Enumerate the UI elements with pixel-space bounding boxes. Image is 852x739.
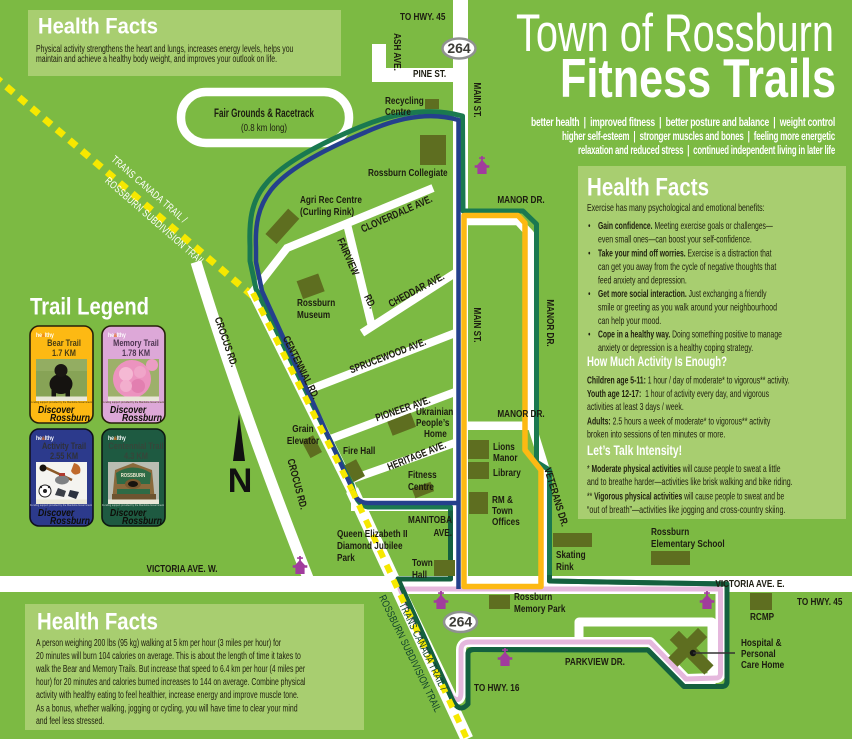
svg-text:Rossburn: Rossburn bbox=[122, 515, 162, 527]
svg-text:Elevator: Elevator bbox=[287, 435, 319, 447]
svg-text:PARKVIEW DR.: PARKVIEW DR. bbox=[565, 656, 625, 668]
svg-text:•: • bbox=[588, 329, 590, 340]
svg-text:MANITOBA: MANITOBA bbox=[408, 514, 452, 526]
svg-text:AVE.: AVE. bbox=[434, 527, 453, 539]
svg-text:PINE ST.: PINE ST. bbox=[413, 68, 446, 80]
svg-text:Park: Park bbox=[337, 552, 355, 564]
svg-text:Care Home: Care Home bbox=[741, 659, 784, 671]
svg-text:N: N bbox=[228, 462, 253, 500]
svg-text:even small ones—can boost your: even small ones—can boost your self-conf… bbox=[598, 234, 752, 245]
svg-text:TO HWY. 45: TO HWY. 45 bbox=[797, 596, 843, 608]
svg-text:Fitness: Fitness bbox=[408, 469, 437, 481]
svg-text:Children age 5-11: 1 hour / da: Children age 5-11: 1 hour / day of moder… bbox=[587, 375, 790, 386]
svg-text:VICTORIA AVE. W.: VICTORIA AVE. W. bbox=[147, 563, 218, 575]
svg-text:Rossburn: Rossburn bbox=[122, 412, 162, 424]
svg-text:Fair Grounds & Racetrack: Fair Grounds & Racetrack bbox=[214, 108, 314, 120]
svg-text:Rossburn: Rossburn bbox=[651, 526, 689, 538]
svg-text:smile or greeting as you walk: smile or greeting as you walk around you… bbox=[598, 302, 777, 313]
svg-text:Rossburn: Rossburn bbox=[514, 591, 552, 603]
svg-text:•: • bbox=[588, 248, 590, 259]
svg-text:activities at least 3 days / w: activities at least 3 days / week. bbox=[587, 401, 684, 412]
svg-text:Rossburn Collegiate: Rossburn Collegiate bbox=[368, 167, 448, 179]
svg-text:Exercise has many psychologica: Exercise has many psychological and emot… bbox=[587, 202, 765, 213]
svg-text:264: 264 bbox=[449, 614, 473, 630]
svg-text:Centre: Centre bbox=[385, 106, 411, 118]
svg-text:Agri Rec Centre: Agri Rec Centre bbox=[300, 194, 362, 206]
svg-text:RCMP: RCMP bbox=[750, 611, 774, 623]
svg-text:can help your mood.: can help your mood. bbox=[598, 315, 661, 326]
svg-text:can get you away from the cycl: can get you away from the cycle of negat… bbox=[598, 261, 777, 272]
svg-text:Health Facts: Health Facts bbox=[38, 14, 158, 39]
svg-text:Gain confidence. Meeting exerc: Gain confidence. Meeting exercise goals … bbox=[598, 220, 773, 231]
svg-text:264: 264 bbox=[447, 40, 471, 56]
svg-text:Rossburn: Rossburn bbox=[50, 412, 90, 424]
svg-text:1.78 KM: 1.78 KM bbox=[122, 348, 150, 359]
svg-text:Health Facts: Health Facts bbox=[37, 609, 158, 636]
svg-text:TO HWY. 45: TO HWY. 45 bbox=[400, 11, 446, 23]
svg-text:4.3 KM: 4.3 KM bbox=[124, 451, 148, 462]
svg-text:Manor: Manor bbox=[493, 452, 518, 464]
svg-text:Adults: 2.5 hours a week of mo: Adults: 2.5 hours a week of moderate* to… bbox=[587, 416, 771, 427]
svg-text:Let’s Talk Intensity!: Let’s Talk Intensity! bbox=[587, 443, 682, 458]
svg-text:and to breathe harder—activiti: and to breathe harder—activities like br… bbox=[587, 476, 793, 487]
svg-text:Trail Legend: Trail Legend bbox=[30, 294, 149, 321]
svg-text:Fire Hall: Fire Hall bbox=[343, 445, 375, 457]
svg-text:MAIN ST.: MAIN ST. bbox=[471, 308, 483, 343]
svg-text:MANOR DR.: MANOR DR. bbox=[544, 299, 556, 346]
svg-text:Offices: Offices bbox=[492, 516, 520, 528]
svg-text:Elementary School: Elementary School bbox=[651, 538, 725, 550]
svg-text:Diamond Jubilee: Diamond Jubilee bbox=[337, 540, 403, 552]
svg-text:Cope in a healthy way. Doing s: Cope in a healthy way. Doing something p… bbox=[598, 329, 782, 340]
svg-text:How Much Activity Is Enough?: How Much Activity Is Enough? bbox=[587, 354, 727, 369]
svg-text:broken into sessions of ten mi: broken into sessions of ten minutes or m… bbox=[587, 429, 725, 440]
svg-text:and feel less stressed.: and feel less stressed. bbox=[36, 715, 104, 726]
svg-text:Skating: Skating bbox=[556, 549, 586, 561]
svg-text:Queen Elizabeth II: Queen Elizabeth II bbox=[337, 528, 408, 540]
svg-text:(Curling Rink): (Curling Rink) bbox=[300, 206, 354, 218]
svg-text:MANOR DR.: MANOR DR. bbox=[497, 408, 544, 420]
svg-text:maintain and achieve a healthy: maintain and achieve a healthy body weig… bbox=[36, 53, 277, 64]
svg-text:walk the Bear and Memory Trail: walk the Bear and Memory Trails. But inc… bbox=[35, 663, 305, 674]
svg-text:“out of breath”—activities lik: “out of breath”—activities like jogging … bbox=[587, 504, 785, 515]
svg-text:A person weighing 200 lbs (95: A person weighing 200 lbs (95 kg) walkin… bbox=[36, 637, 281, 648]
svg-text:Take your mind off worries. Ex: Take your mind off worries. Exercise is … bbox=[598, 248, 772, 259]
svg-text:Memory Park: Memory Park bbox=[514, 603, 566, 615]
svg-text:VICTORIA AVE. E.: VICTORIA AVE. E. bbox=[715, 578, 784, 590]
svg-text:anxiety or depression is a hea: anxiety or depression is a healthy copin… bbox=[598, 342, 753, 353]
svg-text:Health Facts: Health Facts bbox=[587, 174, 709, 202]
svg-text:Town: Town bbox=[412, 557, 433, 569]
svg-text:Centre: Centre bbox=[408, 481, 434, 493]
svg-text:* Moderate physical activities: * Moderate physical activities will caus… bbox=[587, 463, 780, 474]
svg-text:Museum: Museum bbox=[297, 309, 330, 321]
svg-text:Hall: Hall bbox=[412, 569, 427, 581]
svg-text:higher self-esteem | stronge: higher self-esteem | stronger muscles an… bbox=[562, 131, 836, 143]
svg-text:activity with healthy eating t: activity with healthy eating to feel hea… bbox=[36, 689, 299, 700]
svg-text:Fitness Trails: Fitness Trails bbox=[560, 47, 836, 109]
svg-text:Grain: Grain bbox=[292, 423, 313, 435]
svg-text:(0.8 km long): (0.8 km long) bbox=[241, 122, 287, 134]
svg-text:feed anxiety and depression.: feed anxiety and depression. bbox=[598, 275, 687, 286]
svg-text:hour) for 20 minutes and calor: hour) for 20 minutes and calories burned… bbox=[36, 676, 305, 687]
svg-text:ASH AVE.: ASH AVE. bbox=[391, 33, 403, 71]
svg-text:better health | improved fit: better health | improved fitness | bette… bbox=[531, 117, 835, 129]
svg-text:20 minutes will burn 104 calor: 20 minutes will burn 104 calories on ave… bbox=[36, 650, 301, 661]
svg-text:•: • bbox=[588, 288, 590, 299]
svg-text:Rossburn: Rossburn bbox=[297, 297, 335, 309]
svg-text:•: • bbox=[588, 220, 590, 231]
svg-text:Get more social interaction. J: Get more social interaction. Just exchan… bbox=[598, 288, 767, 299]
svg-text:Library: Library bbox=[493, 467, 521, 479]
svg-text:ROSSBURN: ROSSBURN bbox=[121, 473, 146, 479]
svg-text:Home: Home bbox=[424, 428, 447, 440]
svg-text:Rossburn: Rossburn bbox=[50, 515, 90, 527]
svg-text:MAIN ST.: MAIN ST. bbox=[471, 83, 483, 118]
svg-text:MANOR DR.: MANOR DR. bbox=[497, 194, 544, 206]
svg-text:relaxation and reduced stress: relaxation and reduced stress | continue… bbox=[578, 145, 835, 157]
svg-text:As a bonus, whether walking, j: As a bonus, whether walking, jogging or … bbox=[36, 703, 298, 714]
svg-text:TO HWY. 16: TO HWY. 16 bbox=[474, 682, 520, 694]
svg-text:2.55 KM: 2.55 KM bbox=[50, 451, 78, 462]
svg-text:1.7 KM: 1.7 KM bbox=[52, 348, 76, 359]
svg-text:Rink: Rink bbox=[556, 561, 574, 573]
svg-text:** Vigorous physical activitie: ** Vigorous physical activities will cau… bbox=[587, 491, 784, 502]
svg-text:Youth age 12-17: 1 hour of ac: Youth age 12-17: 1 hour of activity ever… bbox=[587, 388, 769, 399]
